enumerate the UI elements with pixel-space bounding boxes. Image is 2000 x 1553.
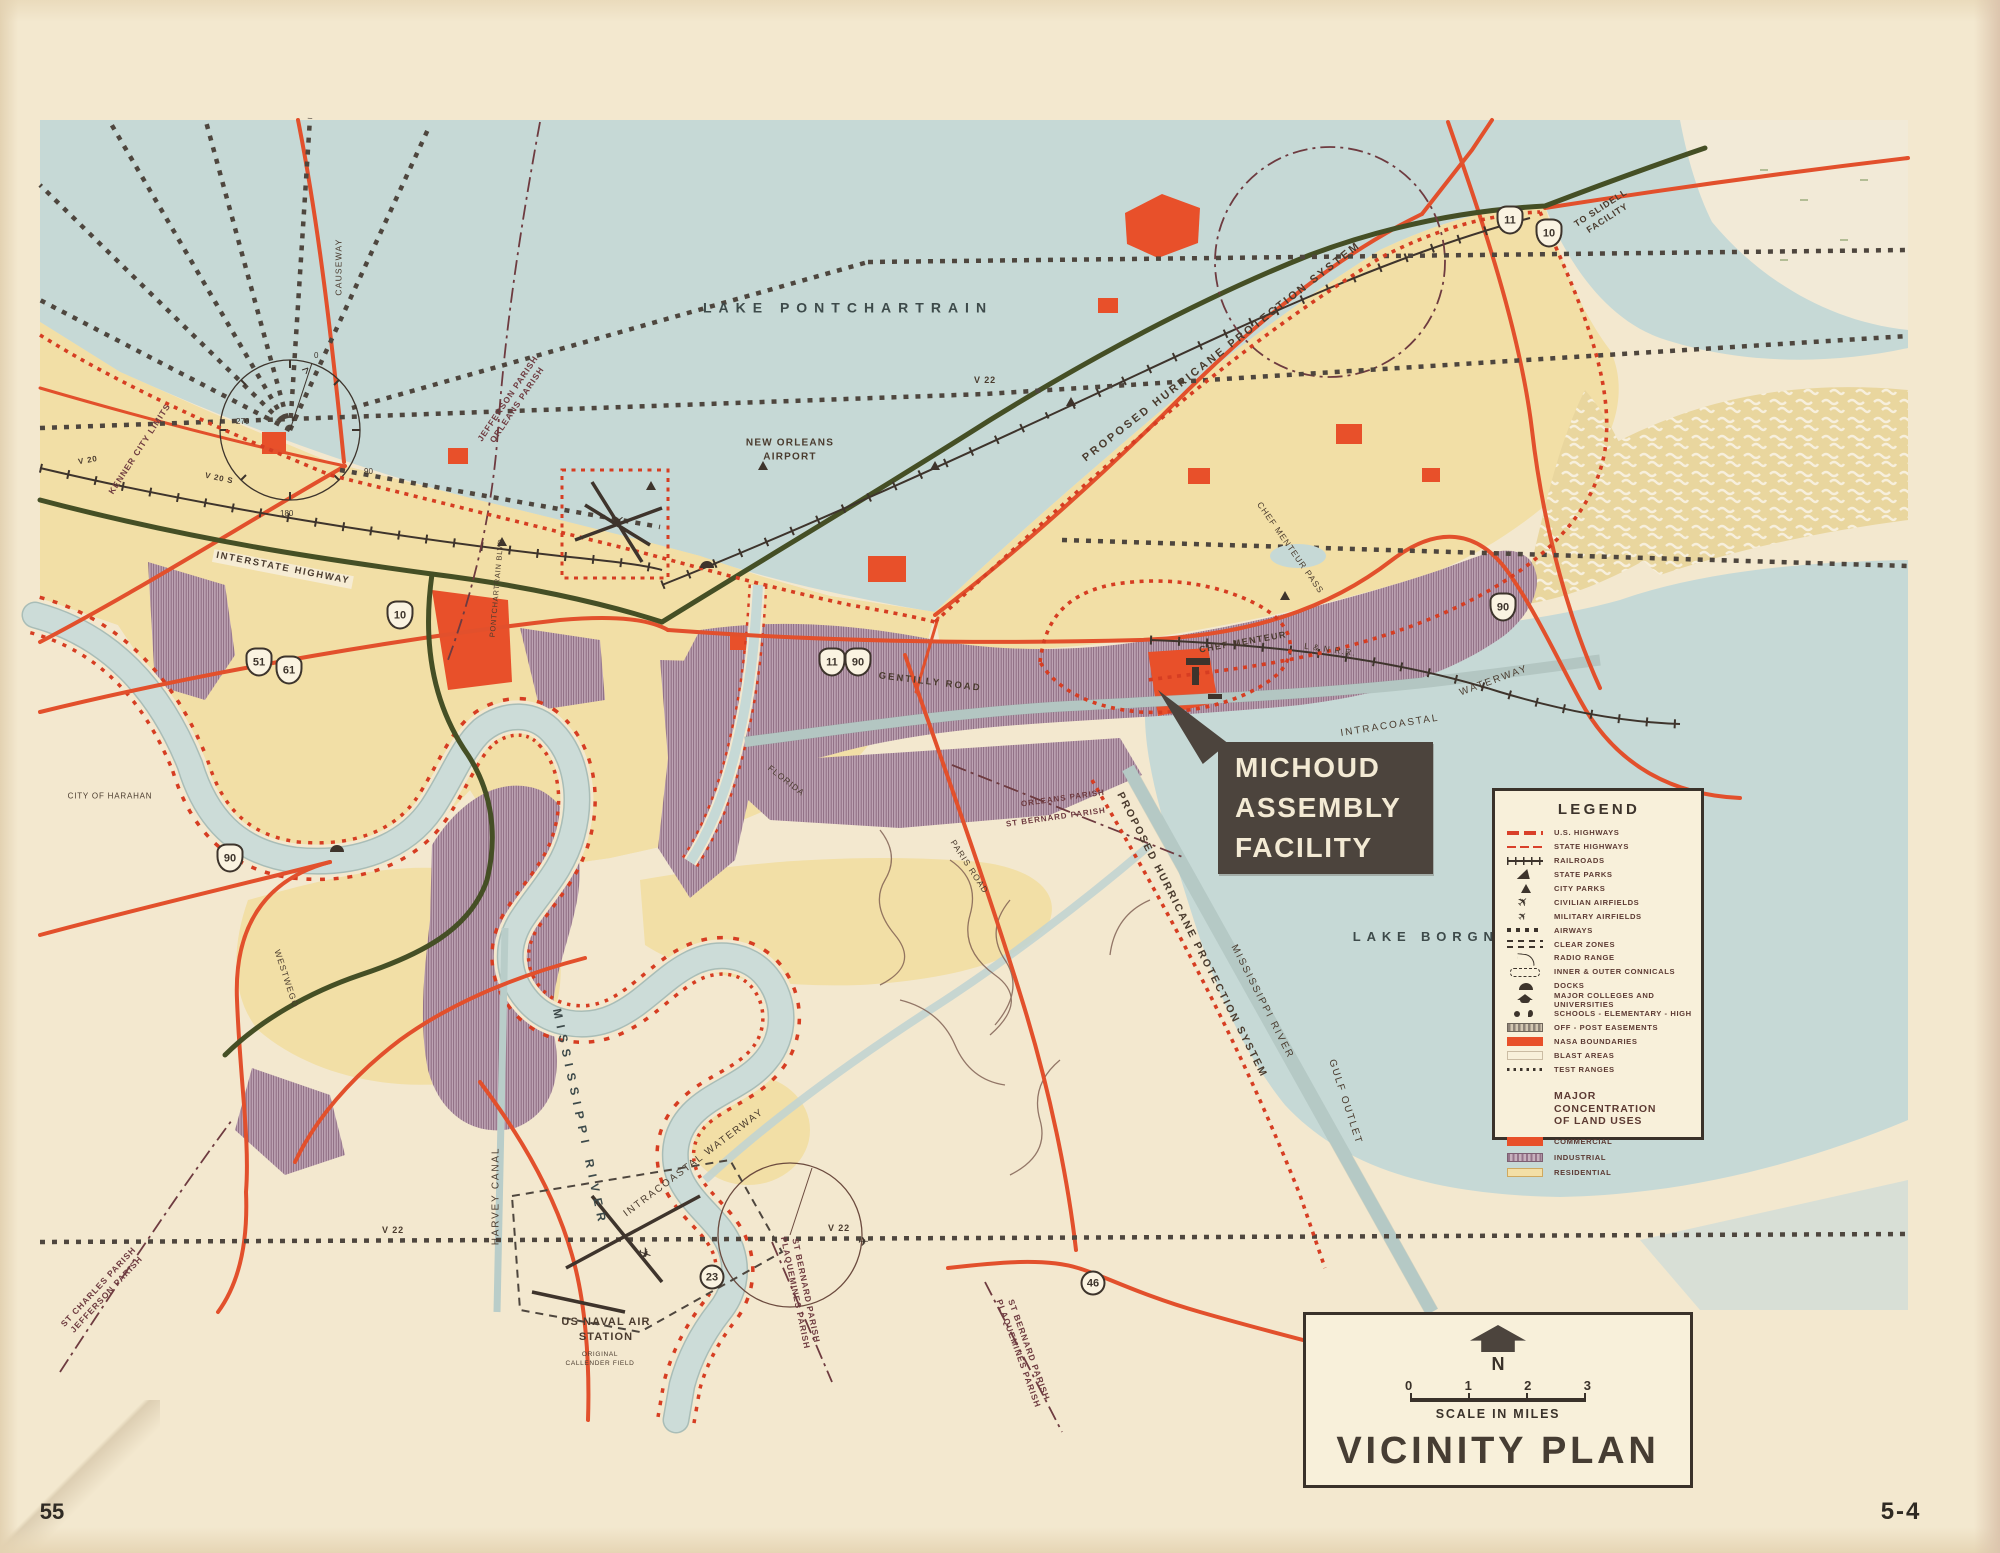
scale-tick-label: 2	[1524, 1378, 1531, 1393]
offpost-easements-swatch	[1505, 1021, 1547, 1034]
scale-tick-label: 0	[1405, 1378, 1412, 1393]
legend-item: MAJOR COLLEGES AND UNIVERSITIES	[1505, 993, 1693, 1007]
legend-item: ✈MILITARY AIRFIELDS	[1505, 909, 1693, 923]
commercial-swatch	[1505, 1135, 1547, 1148]
airways-icon	[1505, 924, 1547, 937]
legend-item: RESIDENTIAL	[1505, 1165, 1693, 1181]
legend-item: COMMERCIAL	[1505, 1134, 1693, 1150]
dock-icon	[1505, 979, 1547, 992]
radio-range-icon	[1505, 951, 1547, 964]
corner-number: 55	[40, 1499, 64, 1525]
clear-zones-icon	[1505, 938, 1547, 951]
nasa-boundaries-swatch	[1505, 1035, 1547, 1048]
label-airway-v22-southeast: V 22	[828, 1222, 850, 1234]
label-us-naval-air-station: US NAVAL AIR STATION	[561, 1315, 650, 1345]
legend-item: RAILROADS	[1505, 854, 1693, 868]
airplane-icon: ✈	[635, 1243, 655, 1266]
pond	[1044, 416, 1076, 432]
highway-shield-23: 23	[700, 1265, 725, 1290]
state-highways-line-icon	[1505, 840, 1547, 853]
legend-title: LEGEND	[1505, 801, 1693, 818]
legend-item: NASA BOUNDARIES	[1505, 1034, 1693, 1048]
civilian-airfield-icon: ✈	[1505, 896, 1547, 909]
label-city-of-harahan: CITY OF HARAHAN	[68, 792, 153, 803]
michoud-assembly-facility-callout: MICHOUD ASSEMBLY FACILITY	[1218, 742, 1433, 874]
legend-item: CITY PARKS	[1505, 882, 1693, 896]
legend-item: TEST RANGES	[1505, 1062, 1693, 1076]
label-lake-pontchartrain: LAKE PONTCHARTRAIN	[703, 299, 993, 318]
svg-text:270: 270	[236, 417, 250, 426]
land-use-title: MAJOR CONCENTRATION OF LAND USES	[1554, 1090, 1693, 1128]
map-sheet: 0 90 180 270 ✈ ✈ ✈ MICHOUD ASSEMBLY FACI	[0, 0, 2000, 1553]
map-title: VICINITY PLAN	[1306, 1430, 1690, 1473]
school-icon	[1505, 1007, 1547, 1020]
legend-item: AIRWAYS	[1505, 923, 1693, 937]
legend-item: SCHOOLS - ELEMENTARY - HIGH	[1505, 1007, 1693, 1021]
blast-areas-swatch	[1505, 1049, 1547, 1062]
legend-item: INNER & OUTER CONNICALS	[1505, 965, 1693, 979]
legend-item: INDUSTRIAL	[1505, 1149, 1693, 1165]
highway-shield-46: 46	[1081, 1271, 1106, 1296]
test-ranges-icon	[1505, 1063, 1547, 1076]
callout-line: ASSEMBLY	[1235, 788, 1433, 828]
north-label: N	[1306, 1354, 1690, 1375]
conical-surfaces-icon	[1505, 965, 1547, 978]
title-block: N 0 1 2 3 SCALE IN MILES VICINITY PLAN	[1303, 1312, 1693, 1488]
industrial-swatch	[1505, 1151, 1547, 1164]
scale-tick-label: 3	[1584, 1378, 1591, 1393]
scale-tick-label: 1	[1465, 1378, 1472, 1393]
legend-item: BLAST AREAS	[1505, 1048, 1693, 1062]
label-callender-field: ORIGINAL CALLENDER FIELD	[566, 1351, 635, 1369]
railroad-line-icon	[1505, 854, 1547, 867]
legend: LEGEND U.S. HIGHWAYS STATE HIGHWAYS RAIL…	[1492, 788, 1704, 1140]
airplane-icon: ✈	[858, 1234, 869, 1249]
callout-line: FACILITY	[1235, 828, 1433, 868]
legend-item: OFF - POST EASEMENTS	[1505, 1020, 1693, 1034]
scale-caption: SCALE IN MILES	[1306, 1407, 1690, 1421]
svg-text:180: 180	[280, 509, 294, 518]
label-harvey-canal: HARVEY CANAL	[489, 1147, 503, 1246]
callout-line: MICHOUD	[1235, 748, 1433, 788]
city-park-icon	[1505, 882, 1547, 895]
sheet-number: 5-4	[1881, 1498, 1921, 1526]
military-airfield-icon: ✈	[1505, 910, 1547, 923]
label-airway-v22-lake: V 22	[974, 374, 996, 386]
label-causeway: CAUSEWAY	[333, 238, 344, 295]
legend-item: CLEAR ZONES	[1505, 937, 1693, 951]
label-new-orleans-airport: NEW ORLEANS AIRPORT	[746, 437, 834, 464]
label-airway-v22-southwest: V 22	[382, 1224, 404, 1236]
legend-item: U.S. HIGHWAYS	[1505, 826, 1693, 840]
college-icon	[1505, 993, 1547, 1006]
svg-text:0: 0	[314, 351, 319, 360]
state-park-icon	[1505, 868, 1547, 881]
us-highways-line-icon	[1505, 826, 1547, 839]
legend-item: ✈CIVILIAN AIRFIELDS	[1505, 895, 1693, 909]
north-arrow-icon	[1470, 1325, 1526, 1352]
legend-item: STATE HIGHWAYS	[1505, 840, 1693, 854]
label-lake-borgne: LAKE BORGNE	[1353, 928, 1513, 946]
legend-item: RADIO RANGE	[1505, 951, 1693, 965]
scale-bar: 0 1 2 3	[1410, 1378, 1586, 1403]
svg-text:90: 90	[364, 467, 373, 476]
residential-swatch	[1505, 1166, 1547, 1179]
legend-item: STATE PARKS	[1505, 868, 1693, 882]
